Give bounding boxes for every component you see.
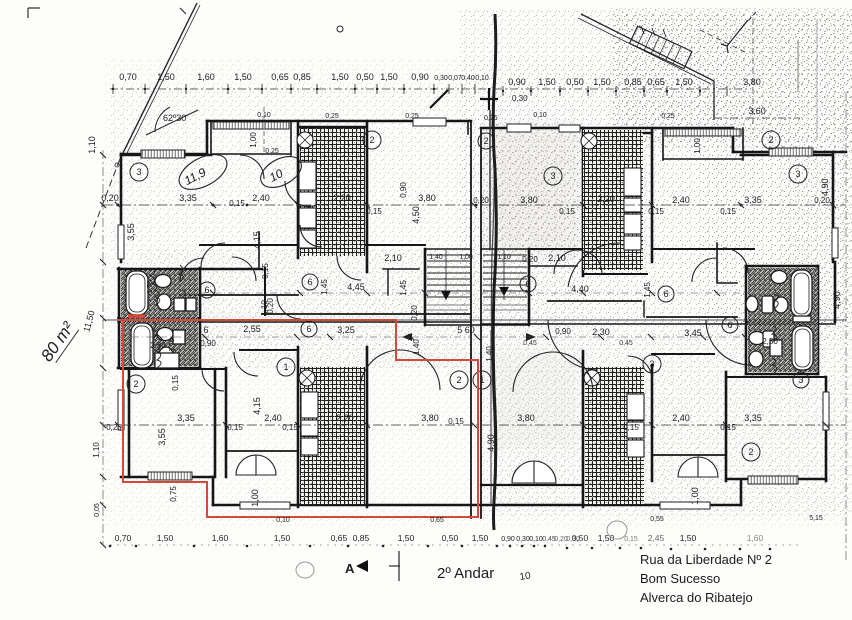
svg-text:3: 3	[550, 171, 555, 181]
svg-text:0,45: 0,45	[619, 340, 633, 347]
svg-text:4,90: 4,90	[486, 434, 496, 452]
svg-text:0,90: 0,90	[411, 72, 429, 82]
svg-text:Rua da Liberdade Nº 2: Rua da Liberdade Nº 2	[640, 552, 772, 567]
svg-text:3,35: 3,35	[744, 413, 762, 423]
svg-text:1,50: 1,50	[380, 72, 398, 82]
svg-text:0,15: 0,15	[229, 199, 245, 208]
svg-text:0,50: 0,50	[572, 533, 589, 543]
svg-text:0,75: 0,75	[169, 486, 178, 502]
svg-text:6: 6	[204, 285, 209, 295]
svg-text:0,65: 0,65	[647, 77, 665, 87]
svg-text:6: 6	[307, 277, 312, 287]
svg-text:0,25: 0,25	[484, 115, 498, 122]
svg-text:6: 6	[663, 289, 668, 299]
svg-text:0,15: 0,15	[624, 536, 638, 543]
svg-text:2,30: 2,30	[592, 327, 610, 337]
svg-text:3,80: 3,80	[421, 413, 439, 423]
svg-text:1,50: 1,50	[234, 72, 252, 82]
svg-text:0,70: 0,70	[119, 72, 137, 82]
svg-text:0,40: 0,40	[461, 75, 475, 82]
svg-text:1,00: 1,00	[249, 132, 258, 148]
svg-text:0,20: 0,20	[410, 305, 419, 321]
svg-text:0,10: 0,10	[475, 75, 489, 82]
svg-text:2,20: 2,20	[597, 194, 615, 204]
svg-text:0,10: 0,10	[276, 517, 290, 524]
svg-text:6: 6	[203, 325, 208, 335]
svg-text:3,35: 3,35	[744, 195, 762, 205]
svg-text:A: A	[345, 561, 355, 576]
svg-text:0,90: 0,90	[399, 182, 408, 198]
svg-text:4,45: 4,45	[347, 282, 365, 292]
svg-text:3,60: 3,60	[748, 106, 766, 116]
svg-text:1,50: 1,50	[398, 533, 415, 543]
svg-text:1,40: 1,40	[412, 339, 421, 355]
svg-text:3,80: 3,80	[517, 413, 535, 423]
svg-text:0,15: 0,15	[559, 207, 575, 216]
svg-text:3,80: 3,80	[520, 195, 538, 205]
svg-text:2: 2	[456, 375, 461, 385]
svg-text:2,10: 2,10	[548, 253, 566, 263]
svg-text:5,15: 5,15	[809, 515, 823, 522]
svg-text:0,85: 0,85	[353, 533, 370, 543]
svg-text:3,55: 3,55	[126, 223, 136, 241]
svg-text:10: 10	[519, 570, 532, 583]
svg-text:3,55: 3,55	[157, 428, 167, 446]
svg-text:1,50: 1,50	[538, 77, 556, 87]
svg-text:3: 3	[795, 169, 800, 179]
svg-text:0,55: 0,55	[650, 516, 664, 523]
svg-text:0,90: 0,90	[555, 327, 571, 336]
svg-text:0,50: 0,50	[442, 533, 459, 543]
svg-text:2: 2	[768, 135, 773, 145]
svg-text:1,50: 1,50	[680, 533, 697, 543]
svg-text:4,90: 4,90	[820, 178, 830, 196]
svg-text:2,40: 2,40	[672, 195, 690, 205]
svg-text:0,15: 0,15	[720, 207, 736, 216]
svg-text:0,65: 0,65	[271, 72, 289, 82]
svg-text:1,00: 1,00	[250, 489, 260, 507]
svg-text:0,25: 0,25	[661, 113, 675, 120]
svg-text:2,20: 2,20	[333, 193, 351, 203]
svg-text:1: 1	[283, 362, 288, 372]
svg-text:62º30': 62º30'	[163, 113, 188, 123]
svg-text:4,15: 4,15	[252, 397, 262, 415]
svg-text:1,60: 1,60	[212, 533, 229, 543]
svg-text:1: 1	[479, 375, 484, 385]
svg-text:1,50: 1,50	[274, 533, 291, 543]
svg-text:0,85: 0,85	[624, 77, 642, 87]
svg-text:5 60: 5 60	[457, 325, 475, 335]
svg-text:0,10: 0,10	[533, 112, 547, 119]
svg-text:1,00: 1,00	[690, 487, 700, 505]
svg-text:0,15: 0,15	[366, 207, 382, 216]
svg-text:3,80: 3,80	[418, 193, 436, 203]
svg-text:0,65: 0,65	[430, 517, 444, 524]
svg-text:3,35: 3,35	[179, 193, 197, 203]
svg-text:0,25: 0,25	[265, 148, 279, 155]
svg-text:0,20: 0,20	[101, 193, 119, 203]
svg-text:0,15: 0,15	[448, 417, 464, 426]
svg-text:1,50: 1,50	[472, 533, 489, 543]
svg-text:0,15: 0,15	[227, 423, 243, 432]
svg-text:1,70: 1,70	[169, 338, 176, 352]
svg-text:2: 2	[748, 447, 753, 457]
svg-text:2: 2	[133, 379, 138, 389]
svg-text:2,20: 2,20	[336, 413, 354, 423]
svg-text:4,15: 4,15	[252, 231, 262, 249]
svg-text:0,70: 0,70	[115, 533, 132, 543]
svg-text:1,10: 1,10	[87, 136, 97, 154]
svg-text:1,00: 1,00	[459, 254, 473, 261]
svg-text:3,35: 3,35	[177, 413, 195, 423]
svg-text:4,40: 4,40	[571, 284, 589, 294]
svg-text:Alverca do Ribatejo: Alverca do Ribatejo	[640, 590, 753, 605]
svg-text:0,50: 0,50	[566, 77, 584, 87]
svg-text:1,10: 1,10	[92, 442, 101, 458]
svg-text:2,10: 2,10	[384, 253, 402, 263]
svg-text:2,40: 2,40	[672, 413, 690, 423]
svg-text:6: 6	[727, 320, 732, 330]
svg-text:1,60: 1,60	[747, 533, 764, 543]
svg-text:2º Andar: 2º Andar	[437, 565, 494, 582]
svg-text:0,07: 0,07	[448, 75, 462, 82]
svg-text:3: 3	[798, 375, 803, 385]
svg-text:0,65: 0,65	[331, 533, 348, 543]
svg-text:4,50: 4,50	[411, 206, 421, 224]
svg-text:3: 3	[136, 167, 141, 177]
svg-text:0,20: 0,20	[814, 196, 830, 205]
svg-text:3: 3	[649, 359, 654, 369]
svg-text:0,25: 0,25	[405, 113, 419, 120]
svg-text:2,30: 2,30	[762, 337, 778, 346]
svg-text:1,00: 1,00	[693, 138, 702, 154]
svg-text:1,50: 1,50	[331, 72, 349, 82]
svg-text:0,10: 0,10	[529, 536, 543, 543]
svg-text:0,15: 0,15	[171, 375, 180, 391]
svg-text:0,30: 0,30	[434, 75, 448, 82]
svg-text:2,45: 2,45	[648, 533, 665, 543]
svg-text:2: 2	[369, 135, 374, 145]
svg-text:0,30: 0,30	[516, 536, 530, 543]
svg-text:0,15: 0,15	[282, 423, 298, 432]
svg-text:0,15: 0,15	[261, 263, 270, 279]
svg-text:0,20: 0,20	[473, 196, 489, 205]
svg-text:6: 6	[306, 324, 311, 334]
svg-text:1,40: 1,40	[429, 254, 443, 261]
svg-text:2,40: 2,40	[252, 193, 270, 203]
svg-text:0,90: 0,90	[200, 339, 216, 348]
svg-text:2: 2	[483, 136, 488, 146]
svg-text:1,50: 1,50	[675, 77, 693, 87]
svg-text:0,30: 0,30	[512, 94, 528, 103]
svg-text:2,40: 2,40	[264, 413, 282, 423]
svg-text:3,80: 3,80	[743, 77, 761, 87]
svg-text:1,50: 1,50	[157, 72, 175, 82]
svg-text:1,10: 1,10	[497, 254, 511, 261]
svg-text:0,15: 0,15	[648, 207, 664, 216]
svg-text:4,90: 4,90	[832, 291, 842, 309]
svg-text:0,25: 0,25	[325, 113, 339, 120]
svg-text:0,05: 0,05	[94, 503, 101, 517]
svg-text:0,90: 0,90	[508, 77, 526, 87]
svg-text:1,50: 1,50	[157, 533, 174, 543]
svg-text:0,15: 0,15	[623, 423, 639, 432]
svg-text:3,45: 3,45	[684, 328, 702, 338]
svg-text:1,40: 1,40	[485, 346, 494, 362]
svg-text:1,45: 1,45	[643, 282, 652, 298]
svg-text:0,20: 0,20	[522, 255, 538, 264]
svg-text:1,45: 1,45	[320, 279, 329, 295]
svg-text:2,55: 2,55	[243, 324, 261, 334]
svg-text:0,90: 0,90	[501, 536, 515, 543]
svg-text:0,85: 0,85	[293, 72, 311, 82]
svg-text:1,50: 1,50	[593, 77, 611, 87]
svg-text:3,25: 3,25	[337, 325, 355, 335]
svg-text:1,45: 1,45	[399, 280, 408, 296]
svg-text:1,10: 1,10	[260, 300, 269, 316]
svg-text:1,60: 1,60	[197, 72, 215, 82]
svg-text:6: 6	[525, 279, 530, 289]
svg-text:Bom Sucesso: Bom Sucesso	[640, 571, 720, 586]
svg-text:0,50: 0,50	[356, 72, 374, 82]
svg-text:0,45: 0,45	[523, 340, 537, 347]
